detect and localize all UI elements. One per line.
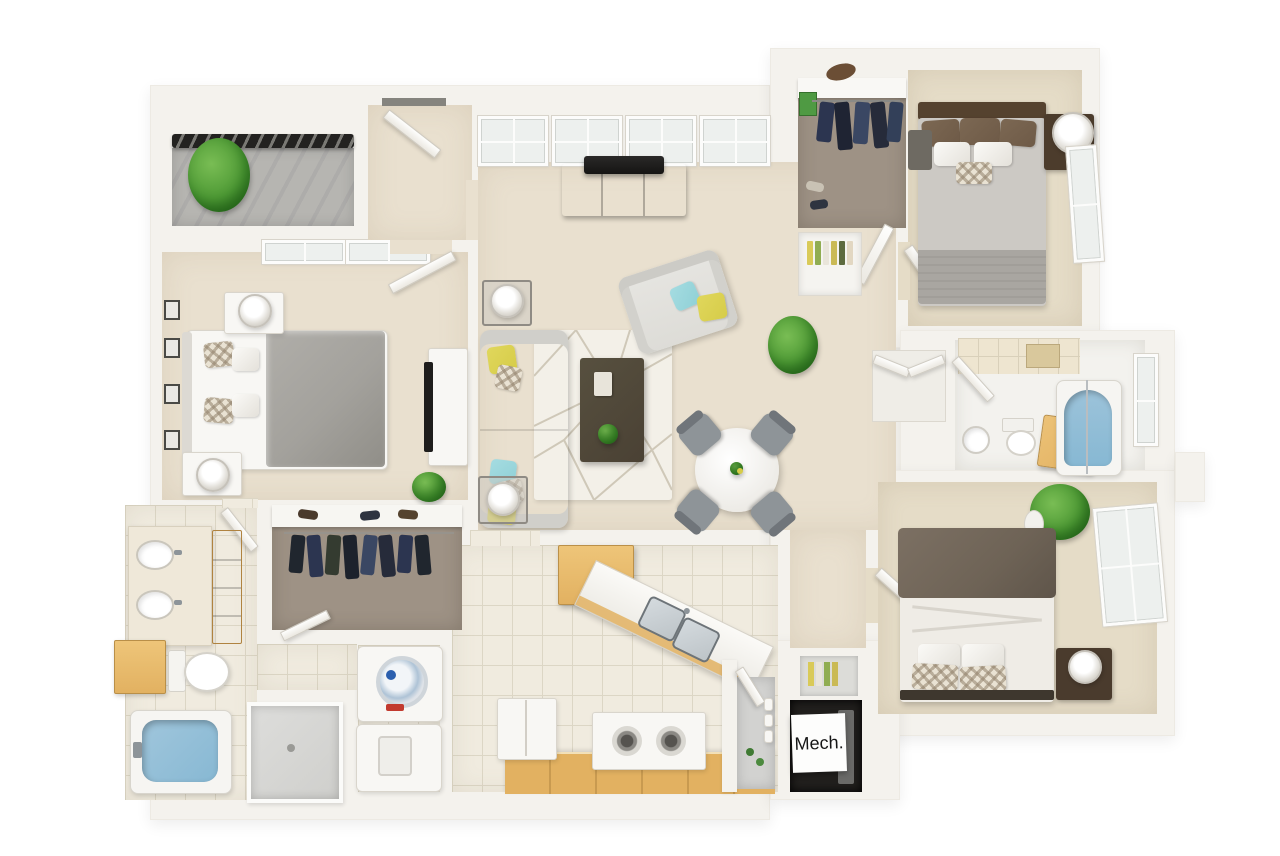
pantry-bottle (746, 748, 754, 756)
ceiling-vent (1026, 344, 1060, 368)
window-mullion (304, 243, 306, 261)
picture-frame (164, 338, 180, 358)
vanity-sink (136, 540, 174, 570)
shelf-book (816, 662, 822, 686)
range-stove (592, 712, 706, 770)
dining-centerpiece-flower (737, 468, 743, 474)
window-mullion (555, 141, 619, 143)
shelf-book (832, 662, 838, 686)
picture-frame (164, 384, 180, 404)
balcony-plant (188, 138, 250, 212)
bedroom2-blanket (918, 250, 1046, 304)
loveseat-pillow (696, 292, 728, 322)
bathtub (142, 720, 218, 782)
vanity-tower-cabinet (212, 530, 242, 644)
tv-screen (424, 362, 433, 452)
coffee-table-books (594, 372, 612, 396)
master-tv-console (428, 348, 468, 466)
hanging-clothes (853, 102, 871, 145)
hanging-clothes (397, 535, 414, 574)
bedroom3-headboard (900, 690, 1054, 700)
master-bed-pillow (203, 341, 235, 369)
bedroom-plant (412, 472, 446, 502)
bedroom3-pillow (911, 663, 958, 691)
toilet-bowl (184, 652, 230, 692)
bedroom3-duvet (898, 528, 1056, 598)
shelf-book (824, 662, 830, 686)
window-mullion (481, 141, 545, 143)
master-bedroom-door-opening (390, 240, 452, 254)
refrigerator-seam (525, 700, 527, 756)
bathroom2-tile-wall (958, 338, 1080, 374)
washer-buttons (386, 704, 404, 711)
master-bed-pillow (232, 348, 259, 371)
light-switch (764, 730, 773, 743)
shower-drain (287, 744, 295, 752)
bath-corridor-floor (257, 644, 357, 690)
bedroom2-pillow (956, 162, 992, 184)
master-bedroom-window (262, 240, 346, 264)
bedroom3-window (1093, 503, 1167, 626)
front-door-threshold (382, 98, 446, 106)
refrigerator (497, 698, 557, 760)
living-room-window (478, 116, 548, 166)
book (839, 241, 845, 265)
closet-rod (284, 532, 454, 534)
stove-burner (612, 726, 642, 756)
shower-curtain-rod (1086, 380, 1088, 474)
kitchen-opening (470, 530, 540, 546)
pantry-bottle (756, 758, 764, 766)
faucet (174, 550, 182, 555)
bedroom2-pillow (960, 118, 1000, 145)
table-lamp (490, 284, 524, 318)
window-mullion (629, 141, 693, 143)
master-bed-pillow (232, 394, 259, 417)
table-lamp (196, 458, 230, 492)
nightstand (908, 130, 932, 170)
washer-dial (386, 670, 396, 680)
mech-room-label: Mech. (791, 713, 847, 773)
shoes (398, 509, 419, 520)
vanity-sink (136, 590, 174, 620)
bookshelf (798, 232, 862, 296)
window-mullion (703, 141, 767, 143)
table-lamp (238, 294, 272, 328)
pantry-wall (722, 660, 737, 792)
faucet (174, 600, 182, 605)
master-bed-headboard (182, 332, 192, 466)
window-mullion (1073, 203, 1097, 207)
table-lamp (486, 482, 520, 516)
bathroom2-window (1134, 354, 1158, 446)
closet2-green-box (799, 92, 817, 116)
book (807, 241, 813, 265)
coffee-table (580, 358, 644, 462)
book (847, 241, 853, 265)
table-lamp (1068, 650, 1102, 684)
light-switch (764, 714, 773, 727)
shelf-book (808, 662, 814, 686)
tv-screen (584, 156, 664, 174)
hanging-clothes (342, 535, 359, 580)
picture-frame (164, 430, 180, 450)
window-mullion (1137, 400, 1155, 402)
coffee-table-plant (598, 424, 618, 444)
washer-door (376, 656, 428, 708)
tub-faucet (133, 742, 142, 758)
floor-plan: Mech. (0, 0, 1280, 856)
living-room-window (700, 116, 770, 166)
sofa-pillow (494, 364, 523, 393)
light-switch (764, 698, 773, 711)
entry-floor (368, 105, 472, 240)
book (815, 241, 821, 265)
hallway-floor (790, 530, 866, 648)
bathroom-cabinet (114, 640, 166, 694)
mech-room-label-text: Mech. (794, 732, 844, 755)
hanging-clothes (325, 535, 342, 576)
master-bed-pillow (203, 397, 235, 425)
shower (247, 702, 343, 803)
bathroom2-sink (962, 426, 990, 454)
book (823, 241, 829, 265)
master-bed-duvet (266, 331, 385, 467)
wall-base-right-jog (1175, 452, 1205, 502)
toilet-bowl (1006, 430, 1036, 456)
stove-burner (656, 726, 686, 756)
book (831, 241, 837, 265)
living-room-plant (768, 316, 818, 374)
bathtub2 (1064, 390, 1112, 466)
dryer-door (378, 736, 412, 776)
bedroom3-pillow (959, 665, 1006, 693)
picture-frame (164, 300, 180, 320)
